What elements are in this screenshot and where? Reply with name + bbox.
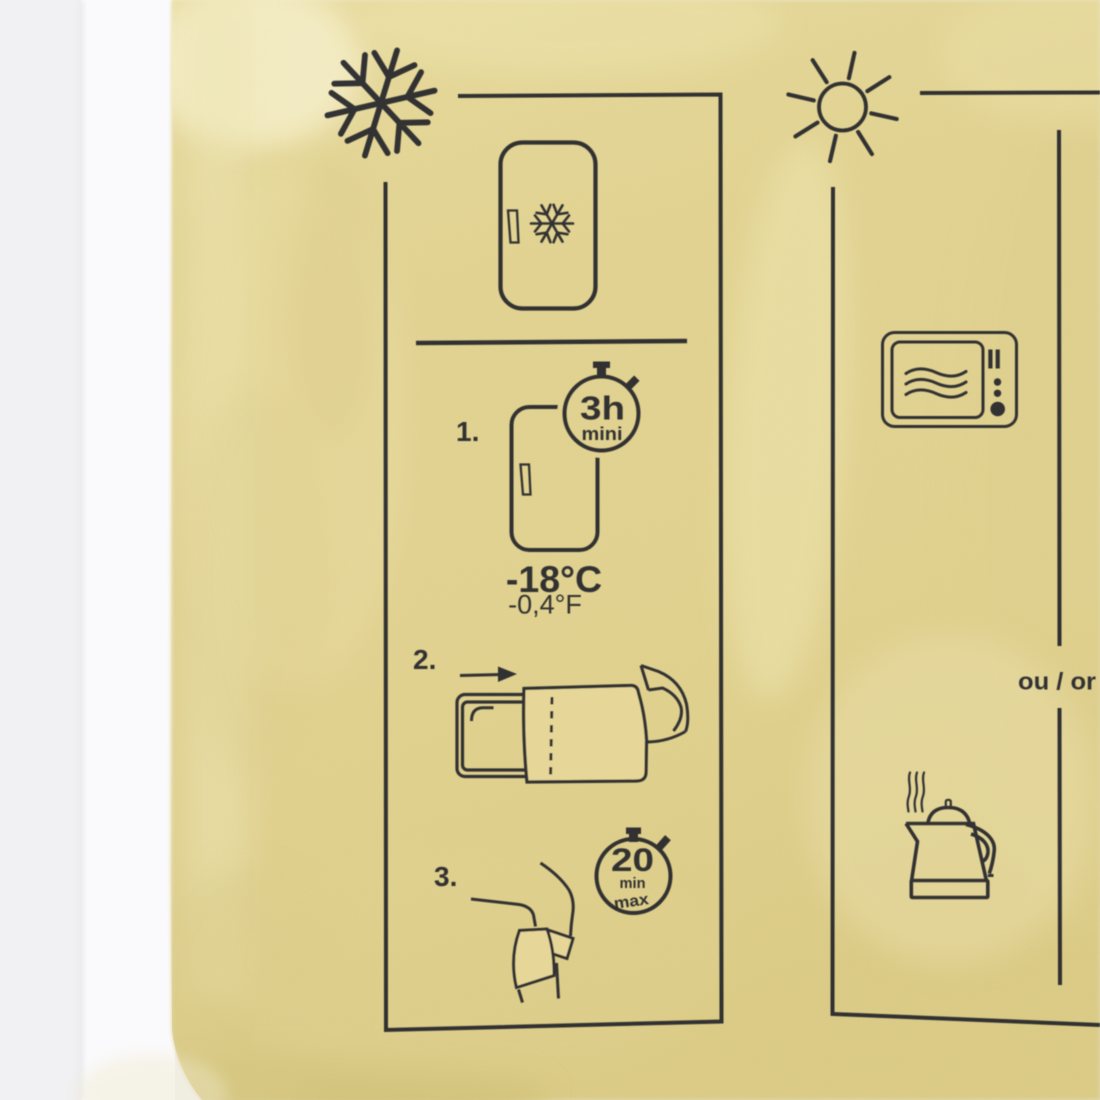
svg-text:3.: 3. <box>434 861 457 892</box>
svg-text:20: 20 <box>611 842 654 878</box>
svg-text:3h: 3h <box>580 390 625 427</box>
svg-text:min: min <box>620 875 646 892</box>
svg-text:2.: 2. <box>413 644 436 675</box>
svg-text:ou / or: ou / or <box>1018 669 1096 696</box>
svg-text:1.: 1. <box>456 416 479 447</box>
svg-text:-0,4°F: -0,4°F <box>508 590 582 620</box>
svg-text:mini: mini <box>582 424 623 444</box>
